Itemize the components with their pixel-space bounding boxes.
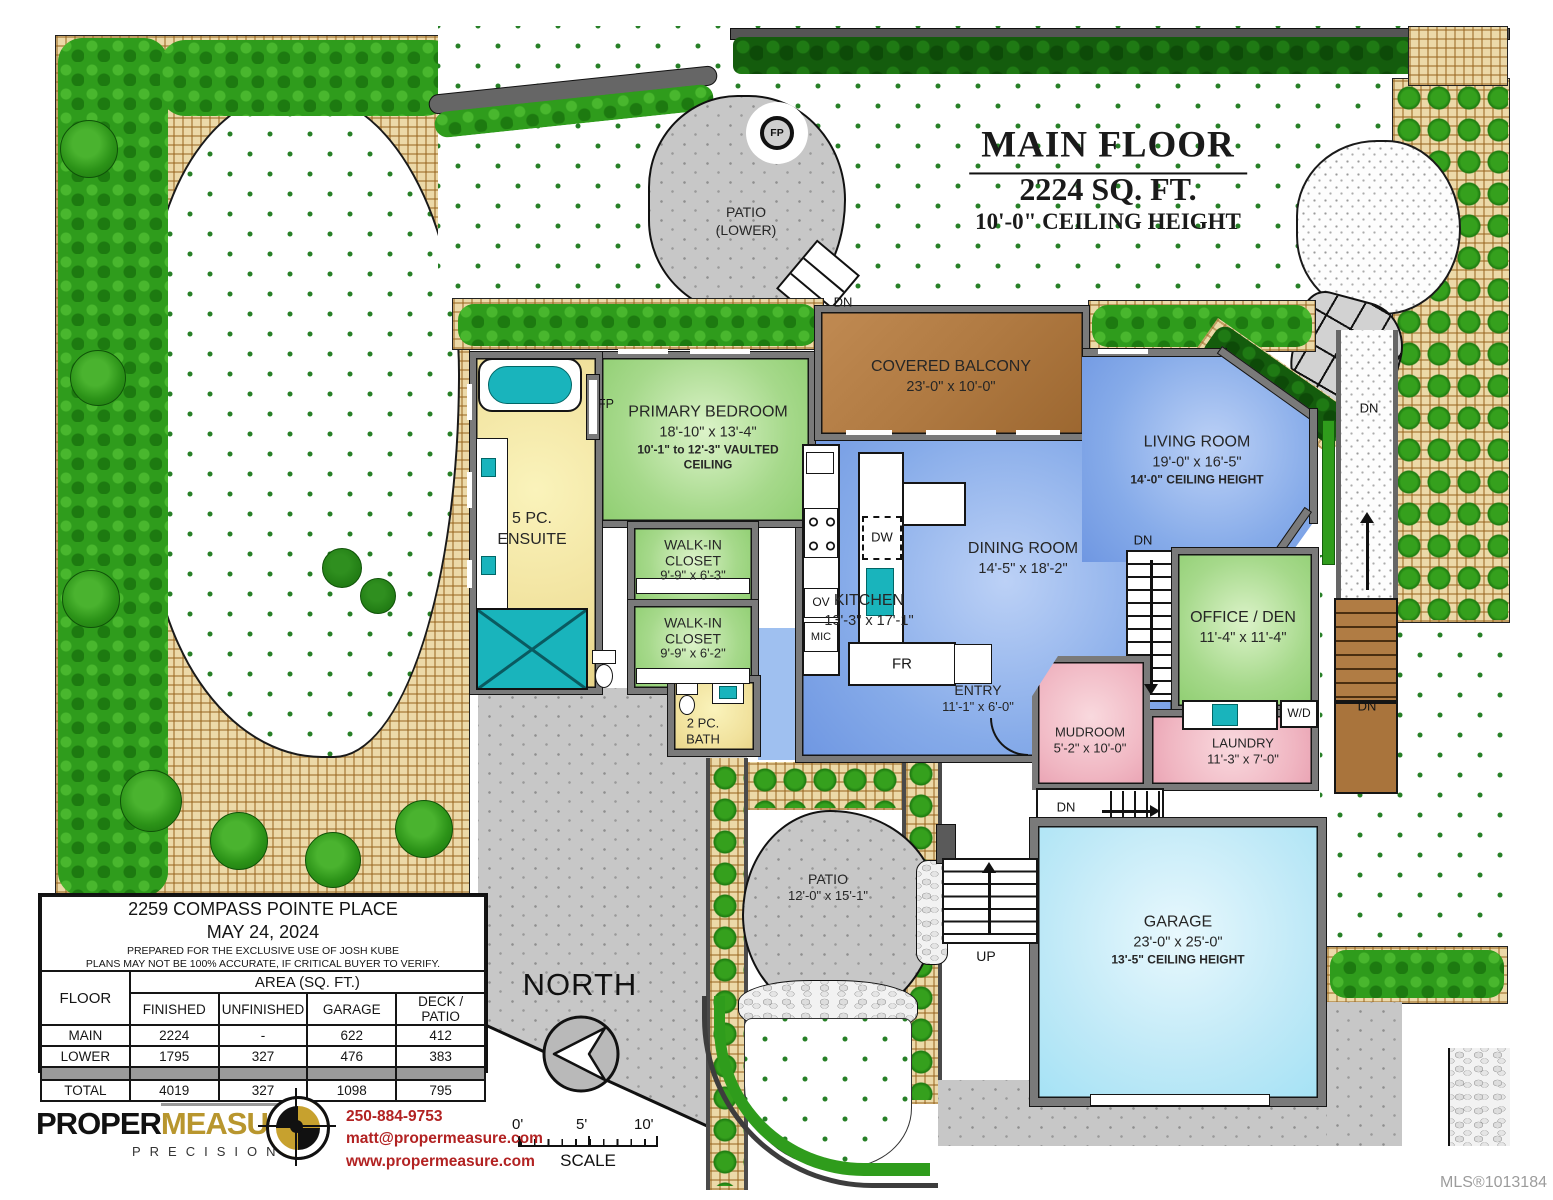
side-grass-strip	[1322, 420, 1335, 565]
room-name: COVERED BALCONY	[871, 357, 1031, 378]
room-name: MUDROOM	[1054, 724, 1127, 740]
room-dims: 11'-4" x 11'-4"	[1190, 629, 1296, 648]
area-table: 2259 COMPASS POINTE PLACE MAY 24, 2024 P…	[40, 895, 486, 1102]
up-arrow-line	[988, 872, 991, 934]
table-note-1: PREPARED FOR THE EXCLUSIVE USE OF JOSH K…	[41, 944, 485, 957]
room-dims: 14'-5" x 18'-2"	[968, 560, 1078, 579]
table-note-2: PLANS MAY NOT BE 100% ACCURATE, IF CRITI…	[41, 957, 485, 971]
toilet-bowl	[679, 695, 695, 715]
label-kitchen: KITCHEN 13'-3" x 17'-1"	[824, 591, 913, 631]
tree	[62, 570, 120, 628]
room-dims: 11'-1" x 6'-0"	[942, 699, 1014, 715]
window	[926, 430, 996, 435]
label-covered-balcony: COVERED BALCONY 23'-0" x 10'-0"	[871, 357, 1031, 397]
mls-number: MLS®1013184	[1440, 1174, 1547, 1192]
cell: 412	[396, 1025, 485, 1046]
cell: 383	[396, 1046, 485, 1067]
spacer-cell	[219, 1067, 308, 1080]
fr-marker: FR	[892, 654, 912, 674]
tree	[395, 800, 453, 858]
spacer-row	[41, 1067, 485, 1080]
mic-marker: MIC	[811, 630, 831, 644]
room-dims: CLOSET	[660, 553, 726, 569]
corner-gravel	[1448, 1048, 1510, 1146]
bath-sink	[719, 686, 737, 699]
room-note: 10'-1" to 12'-3" VAULTED	[628, 442, 787, 458]
dn-marker: DN	[1358, 699, 1377, 716]
room-dims: CLOSET	[660, 631, 726, 647]
crosshair-line-h	[258, 1125, 336, 1127]
plan-ceiling: 10'-0" CEILING HEIGHT	[975, 207, 1241, 237]
up-arrow-head	[982, 862, 996, 873]
total-cell: 795	[396, 1080, 485, 1101]
window	[846, 430, 892, 435]
col-finished: FINISHED	[130, 993, 219, 1025]
contact-block: 250-884-9753 matt@propermeasure.com www.…	[346, 1106, 543, 1173]
room-dims: 11'-3" x 7'-0"	[1207, 751, 1279, 767]
table-row: LOWER 1795 327 476 383	[41, 1046, 485, 1067]
label-patio-lower: PATIO (LOWER)	[716, 203, 777, 239]
tree	[60, 120, 118, 178]
bottom-right-hedge	[1330, 950, 1504, 998]
room-dims: ENSUITE	[497, 530, 566, 551]
window	[1098, 349, 1148, 354]
contact-email: matt@propermeasure.com	[346, 1128, 543, 1150]
title-line-1: MAIN FLOOR	[981, 124, 1235, 165]
room-name: GARAGE	[1111, 912, 1244, 933]
scale-tick-10: 10'	[634, 1116, 654, 1133]
cell: 2224	[130, 1025, 219, 1046]
room-name: 5 PC.	[497, 509, 566, 530]
room-note: 13'-5" CEILING HEIGHT	[1111, 952, 1244, 968]
dn-marker: DN	[1360, 401, 1379, 418]
entry-front-hedge	[750, 764, 900, 808]
row-label: LOWER	[41, 1046, 130, 1067]
closet-shelf	[636, 668, 750, 684]
cell: 476	[307, 1046, 396, 1067]
room-dims: 23'-0" x 10'-0"	[871, 378, 1031, 397]
label-bath: 2 PC. BATH	[686, 715, 720, 746]
spacer-cell	[130, 1067, 219, 1080]
garage-apron-right	[1326, 1002, 1402, 1146]
top-left-hedge	[160, 40, 465, 116]
fp-marker: FP	[598, 396, 614, 412]
plan-title: MAIN FLOOR	[969, 121, 1247, 174]
vanity-sink	[481, 556, 496, 575]
contact-website: www.propermeasure.com	[346, 1151, 543, 1173]
col-deck-patio: DECK / PATIO	[396, 993, 485, 1025]
room-dims: 12'-0" x 15'-1"	[788, 888, 868, 904]
room-note: 9'-9" x 6'-3"	[660, 569, 726, 584]
room-name: PATIO	[716, 203, 777, 221]
dn-arrow-head	[1144, 684, 1158, 695]
room-dims: (LOWER)	[716, 221, 777, 239]
room-note: 9'-9" x 6'-2"	[660, 647, 726, 662]
logo-crosshair-icon	[262, 1092, 332, 1162]
label-mudroom: MUDROOM 5'-2" x 10'-0"	[1054, 724, 1127, 755]
vanity-sink	[481, 458, 496, 477]
shower	[476, 608, 588, 690]
room-note: CEILING	[628, 458, 787, 474]
kitchen-island-arm	[902, 482, 966, 526]
window	[467, 472, 472, 508]
north-label: NORTH	[523, 965, 638, 1005]
tree	[322, 548, 362, 588]
cell: 327	[219, 1046, 308, 1067]
dn-marker: DN	[834, 295, 853, 312]
up-marker: UP	[976, 947, 995, 965]
window	[467, 384, 472, 420]
cell: 622	[307, 1025, 396, 1046]
room-name: WALK-IN	[660, 614, 726, 630]
tree	[305, 832, 361, 888]
cell: 1795	[130, 1046, 219, 1067]
label-laundry: LAUNDRY 11'-3" x 7'-0"	[1207, 735, 1279, 766]
fire-pit: FP	[760, 116, 794, 150]
col-unfinished: UNFINISHED	[219, 993, 308, 1025]
spacer-cell	[307, 1067, 396, 1080]
total-cell: 4019	[130, 1080, 219, 1101]
total-label: TOTAL	[41, 1080, 130, 1101]
logo-word-proper: PROPER	[36, 1106, 161, 1141]
tree	[360, 578, 396, 614]
room-name: DINING ROOM	[968, 539, 1078, 560]
room-note: 14'-0" CEILING HEIGHT	[1130, 472, 1263, 488]
room-mudroom	[1032, 656, 1150, 790]
label-dining-room: DINING ROOM 14'-5" x 18'-2"	[968, 539, 1078, 579]
room-name: 2 PC.	[686, 715, 720, 731]
room-name: WALK-IN	[660, 536, 726, 552]
label-entry: ENTRY 11'-1" x 6'-0"	[942, 682, 1014, 714]
scale-label: SCALE	[560, 1150, 616, 1172]
row-label: MAIN	[41, 1025, 130, 1046]
room-name: OFFICE / DEN	[1190, 608, 1296, 629]
kitchen-sink-box	[806, 452, 834, 474]
window	[618, 349, 668, 354]
window	[1016, 430, 1060, 435]
dw-marker: DW	[871, 530, 893, 547]
label-walk-in-closet-2: WALK-IN CLOSET 9'-9" x 6'-2"	[660, 614, 726, 661]
path-arrow-line	[1366, 520, 1369, 590]
contact-phone: 250-884-9753	[346, 1106, 543, 1128]
table-address: 2259 COMPASS POINTE PLACE	[41, 896, 485, 921]
room-dims: 23'-0" x 25'-0"	[1111, 933, 1244, 952]
top-hedge-row	[733, 37, 1508, 74]
window	[467, 560, 472, 588]
toilet	[592, 650, 616, 664]
dn-arrow-line	[1102, 810, 1152, 813]
exterior-wood-stairs	[1334, 598, 1398, 702]
table-row: MAIN 2224 - 622 412	[41, 1025, 485, 1046]
room-name: LIVING ROOM	[1130, 432, 1263, 453]
dn-arrow-line	[1150, 560, 1153, 686]
floor-plan-canvas: FP	[0, 0, 1553, 1200]
dn-arrow-head	[1150, 805, 1160, 817]
label-ensuite: 5 PC. ENSUITE	[497, 509, 566, 551]
tree	[210, 812, 268, 870]
laundry-sink	[1212, 704, 1238, 726]
room-name: ENTRY	[942, 682, 1014, 699]
room-name: PRIMARY BEDROOM	[628, 403, 787, 424]
cooktop	[804, 508, 838, 558]
tree	[120, 770, 182, 832]
garage-door	[1090, 1094, 1270, 1106]
col-garage: GARAGE	[307, 993, 396, 1025]
label-office-den: OFFICE / DEN 11'-4" x 11'-4"	[1190, 608, 1296, 648]
crosshair-line-v	[295, 1088, 297, 1166]
stone-patio-blob	[1296, 140, 1461, 315]
info-table: 2259 COMPASS POINTE PLACE MAY 24, 2024 P…	[38, 893, 488, 1073]
table-date: MAY 24, 2024	[41, 921, 485, 944]
fireplace-inner	[589, 380, 597, 434]
top-right-corner-bed	[1408, 26, 1508, 86]
cell: -	[219, 1025, 308, 1046]
room-dims: 19'-0" x 16'-5"	[1130, 453, 1263, 472]
fire-pit-label: FP	[770, 127, 783, 139]
window	[690, 349, 750, 354]
label-patio: PATIO 12'-0" x 15'-1"	[788, 871, 868, 903]
floor-header: FLOOR	[41, 971, 130, 1025]
path-arrow-head	[1360, 512, 1374, 523]
label-walk-in-closet-1: WALK-IN CLOSET 9'-9" x 6'-3"	[660, 536, 726, 583]
area-header: AREA (SQ. FT.)	[130, 971, 485, 993]
room-dims: BATH	[686, 731, 720, 747]
tree	[70, 350, 126, 406]
pantry-cabinet	[954, 644, 992, 684]
label-living-room: LIVING ROOM 19'-0" x 16'-5" 14'-0" CEILI…	[1130, 432, 1263, 487]
dn-marker: DN	[1134, 533, 1153, 550]
ov-marker: OV	[812, 595, 829, 611]
scale-tick-5: 5'	[576, 1116, 587, 1133]
room-name: PATIO	[788, 871, 868, 888]
toilet-bowl	[595, 664, 613, 688]
living-wall-right	[1309, 408, 1318, 524]
bathtub-basin	[488, 366, 572, 404]
plan-area: 2224 SQ. FT.	[1019, 169, 1196, 211]
wood-landing	[1334, 702, 1398, 794]
room-name: KITCHEN	[824, 591, 913, 612]
room-dims: 18'-10" x 13'-4"	[628, 423, 787, 442]
scale-mid-tick	[588, 1136, 590, 1145]
room-dims: 5'-2" x 10'-0"	[1054, 740, 1127, 756]
label-garage: GARAGE 23'-0" x 25'-0" 13'-5" CEILING HE…	[1111, 912, 1244, 967]
north-arrow	[541, 1014, 621, 1094]
dn-marker: DN	[1057, 800, 1076, 817]
spacer-cell	[396, 1067, 485, 1080]
north-arrow-icon	[541, 1014, 621, 1094]
room-name: LAUNDRY	[1207, 735, 1279, 751]
hedgerow-left-of-balcony	[458, 304, 818, 346]
label-primary-bedroom: PRIMARY BEDROOM 18'-10" x 13'-4" 10'-1" …	[628, 403, 787, 474]
left-lawn	[148, 92, 460, 758]
room-dims: 13'-3" x 17'-1"	[824, 612, 913, 631]
spacer-cell	[41, 1067, 130, 1080]
wd-marker: W/D	[1287, 706, 1310, 722]
